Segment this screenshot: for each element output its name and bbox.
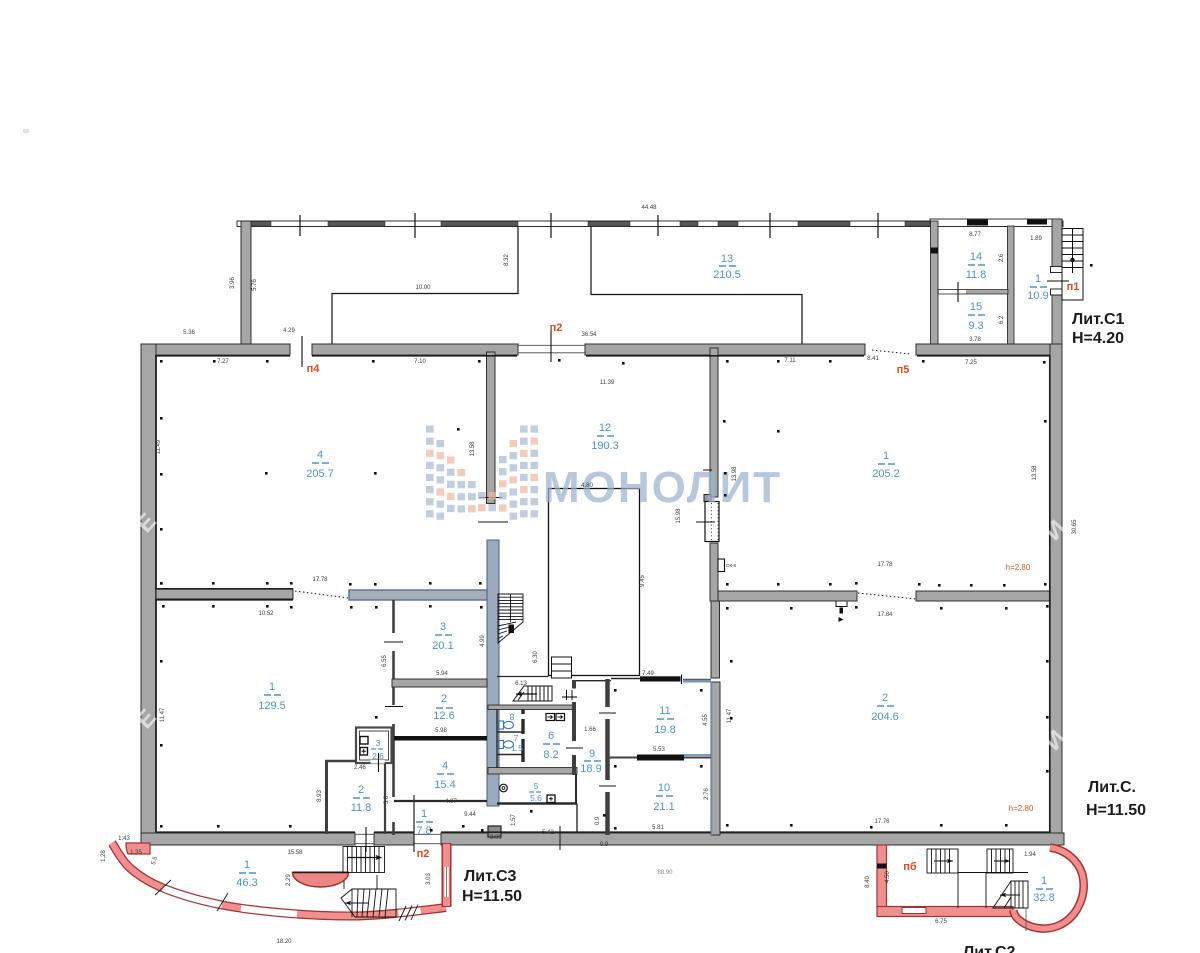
svg-text:7.11: 7.11	[784, 358, 796, 364]
svg-text:4.50: 4.50	[885, 871, 891, 883]
svg-text:1: 1	[883, 450, 889, 462]
svg-text:0.9: 0.9	[595, 816, 601, 825]
svg-text:п2: п2	[417, 848, 430, 860]
svg-text:8: 8	[510, 712, 515, 722]
svg-text:1: 1	[421, 808, 427, 820]
svg-text:1.35: 1.35	[130, 850, 142, 856]
svg-text:5.6: 5.6	[530, 793, 542, 803]
svg-text:12: 12	[599, 422, 611, 434]
svg-text:Н=4.20: Н=4.20	[1072, 330, 1124, 347]
svg-text:h=2.80: h=2.80	[1006, 563, 1031, 572]
svg-text:3.96: 3.96	[230, 277, 236, 289]
svg-text:6: 6	[548, 730, 554, 742]
svg-text:Лит.С2: Лит.С2	[963, 944, 1015, 953]
svg-text:1.66: 1.66	[584, 727, 596, 733]
svg-text:Н=11.50: Н=11.50	[1086, 802, 1146, 819]
svg-text:9.44: 9.44	[464, 812, 476, 818]
svg-text:36.54: 36.54	[581, 332, 597, 338]
svg-text:13.58: 13.58	[1032, 465, 1038, 481]
svg-text:9.45: 9.45	[640, 575, 646, 587]
svg-text:4: 4	[442, 760, 448, 772]
svg-text:21.1: 21.1	[653, 801, 674, 813]
svg-text:11.8: 11.8	[351, 802, 372, 814]
svg-text:17.78: 17.78	[877, 562, 893, 568]
svg-text:1: 1	[244, 859, 250, 871]
svg-text:20.1: 20.1	[432, 640, 453, 652]
svg-text:17.76: 17.76	[874, 819, 890, 825]
svg-text:1.5: 1.5	[511, 743, 523, 753]
svg-text:8.41: 8.41	[867, 356, 879, 362]
svg-text:18.20: 18.20	[276, 939, 292, 945]
svg-text:17.84: 17.84	[877, 612, 893, 618]
svg-text:129.5: 129.5	[258, 700, 286, 712]
svg-text:п5: п5	[897, 364, 910, 376]
svg-text:4.80: 4.80	[581, 483, 593, 489]
svg-text:5.98: 5.98	[435, 728, 447, 734]
svg-text:15.4: 15.4	[434, 779, 455, 791]
svg-text:п4: п4	[307, 363, 321, 375]
svg-text:3.6: 3.6	[384, 795, 390, 804]
svg-text:6.30: 6.30	[533, 651, 539, 663]
svg-text:4: 4	[317, 449, 323, 461]
svg-text:1: 1	[269, 681, 275, 693]
svg-text:1: 1	[1041, 875, 1047, 887]
svg-text:5.53: 5.53	[653, 747, 665, 753]
svg-text:4.55: 4.55	[703, 714, 709, 726]
svg-text:210.5: 210.5	[713, 269, 741, 281]
svg-text:3.78: 3.78	[969, 337, 981, 343]
svg-text:9: 9	[589, 748, 595, 760]
svg-text:7.8: 7.8	[416, 825, 431, 837]
svg-text:2: 2	[358, 784, 364, 796]
svg-text:88,90: 88,90	[657, 870, 673, 876]
svg-text:6.55: 6.55	[382, 655, 388, 667]
svg-text:3.99: 3.99	[490, 835, 502, 841]
svg-text:МОНОЛИТ: МОНОЛИТ	[543, 463, 782, 512]
svg-text:12.6: 12.6	[433, 710, 454, 722]
svg-text:п1: п1	[1067, 281, 1080, 293]
svg-text:6.2: 6.2	[999, 315, 1005, 324]
svg-text:11.47: 11.47	[727, 708, 733, 723]
svg-text:14: 14	[970, 251, 982, 263]
svg-text:7.10: 7.10	[414, 359, 426, 365]
svg-text:190.3: 190.3	[591, 440, 619, 452]
svg-text:6.75: 6.75	[935, 919, 947, 925]
svg-text:11.8: 11.8	[966, 269, 987, 281]
svg-text:5.76: 5.76	[252, 279, 258, 291]
svg-text:8.77: 8.77	[969, 232, 981, 238]
svg-text:Лит.С3: Лит.С3	[464, 868, 516, 885]
svg-text:1: 1	[1035, 273, 1041, 285]
svg-text:7: 7	[514, 733, 519, 743]
svg-text:пб: пб	[903, 861, 917, 873]
svg-text:3: 3	[440, 621, 446, 633]
svg-text:1.43: 1.43	[118, 836, 130, 842]
svg-text:10.9: 10.9	[1027, 290, 1048, 302]
svg-text:2: 2	[882, 692, 888, 704]
svg-text:204.6: 204.6	[871, 711, 899, 723]
svg-text:1.89: 1.89	[1030, 236, 1042, 242]
svg-text:7.25: 7.25	[965, 360, 977, 366]
svg-text:п2: п2	[550, 322, 563, 334]
svg-text:46.3: 46.3	[236, 877, 257, 889]
svg-text:11.47: 11.47	[160, 707, 166, 722]
svg-text:3: 3	[376, 738, 381, 748]
svg-text:13.58: 13.58	[470, 441, 476, 457]
svg-text:5.81: 5.81	[652, 825, 664, 831]
svg-text:2.46: 2.46	[354, 765, 366, 771]
svg-text:7.49: 7.49	[642, 671, 654, 677]
svg-text:0.9: 0.9	[600, 842, 609, 848]
svg-text:4.99: 4.99	[480, 635, 486, 647]
svg-text:8.40: 8.40	[865, 876, 871, 888]
svg-text:15.98: 15.98	[676, 508, 682, 524]
svg-text:44.48: 44.48	[641, 205, 657, 211]
svg-text:11.39: 11.39	[600, 380, 615, 386]
svg-text:4.29: 4.29	[283, 328, 295, 334]
svg-text:2: 2	[441, 693, 447, 705]
svg-text:1.57: 1.57	[511, 814, 517, 826]
svg-text:13.98: 13.98	[732, 466, 738, 482]
svg-text:2.29: 2.29	[286, 874, 292, 886]
svg-text:8.93: 8.93	[317, 790, 323, 802]
svg-text:17.78: 17.78	[312, 577, 328, 583]
svg-text:2.76: 2.76	[704, 788, 710, 800]
svg-text:15: 15	[970, 301, 982, 313]
svg-text:1.28: 1.28	[101, 850, 107, 862]
svg-text:13: 13	[721, 253, 733, 265]
svg-text:7.27: 7.27	[217, 359, 229, 365]
svg-text:10.00: 10.00	[415, 285, 431, 291]
svg-text:Н=11.50: Н=11.50	[462, 888, 522, 905]
svg-text:11.49: 11.49	[156, 439, 162, 454]
svg-text:2.6: 2.6	[372, 751, 384, 761]
svg-text:18.9: 18.9	[580, 763, 601, 775]
svg-text:ОК-8: ОК-8	[726, 563, 737, 568]
svg-text:205.7: 205.7	[306, 468, 334, 480]
svg-text:5.94: 5.94	[436, 671, 448, 677]
svg-text:15.58: 15.58	[287, 850, 303, 856]
svg-text:9.3: 9.3	[968, 320, 983, 332]
svg-text:Лит.С.: Лит.С.	[1088, 779, 1136, 796]
svg-text:8.2: 8.2	[543, 749, 558, 761]
svg-text:5.42: 5.42	[542, 830, 554, 836]
svg-text:6.13: 6.13	[515, 681, 527, 687]
svg-text:10.52: 10.52	[258, 611, 274, 617]
svg-text:2.6: 2.6	[999, 253, 1005, 262]
svg-text:19.8: 19.8	[654, 724, 675, 736]
svg-text:5.36: 5.36	[183, 330, 195, 336]
svg-text:3.03: 3.03	[426, 873, 432, 885]
svg-text:5: 5	[534, 781, 539, 791]
svg-text:32.8: 32.8	[1033, 892, 1054, 904]
svg-text:h=2.80: h=2.80	[1009, 804, 1034, 813]
svg-text:1.94: 1.94	[1024, 852, 1036, 858]
svg-text:8.32: 8.32	[504, 254, 510, 266]
svg-text:11: 11	[659, 705, 670, 717]
svg-text:30.65: 30.65	[1072, 519, 1078, 535]
svg-text:205.2: 205.2	[872, 468, 900, 480]
svg-text:4.97: 4.97	[445, 799, 457, 805]
svg-text:Лит.С1: Лит.С1	[1072, 311, 1124, 328]
svg-text:10: 10	[658, 782, 670, 794]
